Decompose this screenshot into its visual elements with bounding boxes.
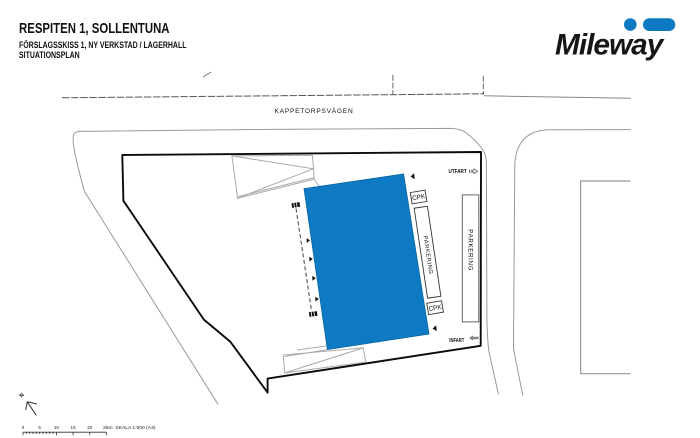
svg-text:UTFART: UTFART (449, 169, 468, 175)
svg-text:25m SKALA 1:500 (A3): 25m SKALA 1:500 (A3) (103, 425, 156, 430)
svg-text:INFART: INFART (449, 338, 465, 344)
svg-text:KAPPETORPSVÄGEN: KAPPETORPSVÄGEN (275, 107, 354, 115)
svg-text:20: 20 (87, 425, 93, 430)
svg-text:N: N (19, 392, 26, 399)
svg-text:10: 10 (54, 425, 60, 430)
svg-text:5: 5 (38, 425, 41, 430)
svg-text:0: 0 (22, 425, 25, 430)
svg-text:PARKERING: PARKERING (467, 229, 474, 271)
svg-text:15: 15 (71, 425, 77, 430)
